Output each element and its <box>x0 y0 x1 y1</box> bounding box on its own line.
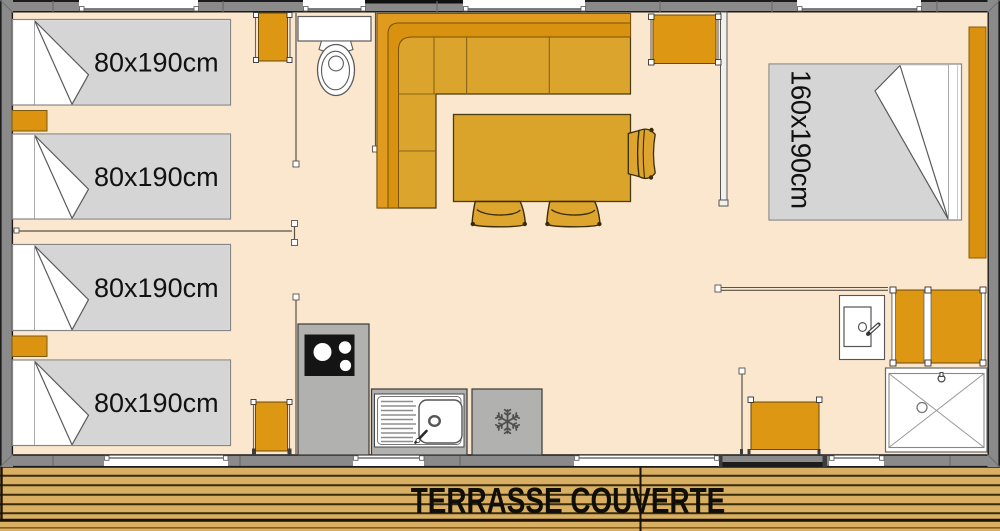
svg-text:80x190cm: 80x190cm <box>94 388 219 418</box>
svg-text:80x190cm: 80x190cm <box>94 162 219 192</box>
svg-text:80x190cm: 80x190cm <box>94 48 219 78</box>
svg-text:TERRASSE COUVERTE: TERRASSE COUVERTE <box>411 481 726 521</box>
svg-text:160x190cm: 160x190cm <box>786 70 817 209</box>
svg-text:80x190cm: 80x190cm <box>94 273 219 303</box>
